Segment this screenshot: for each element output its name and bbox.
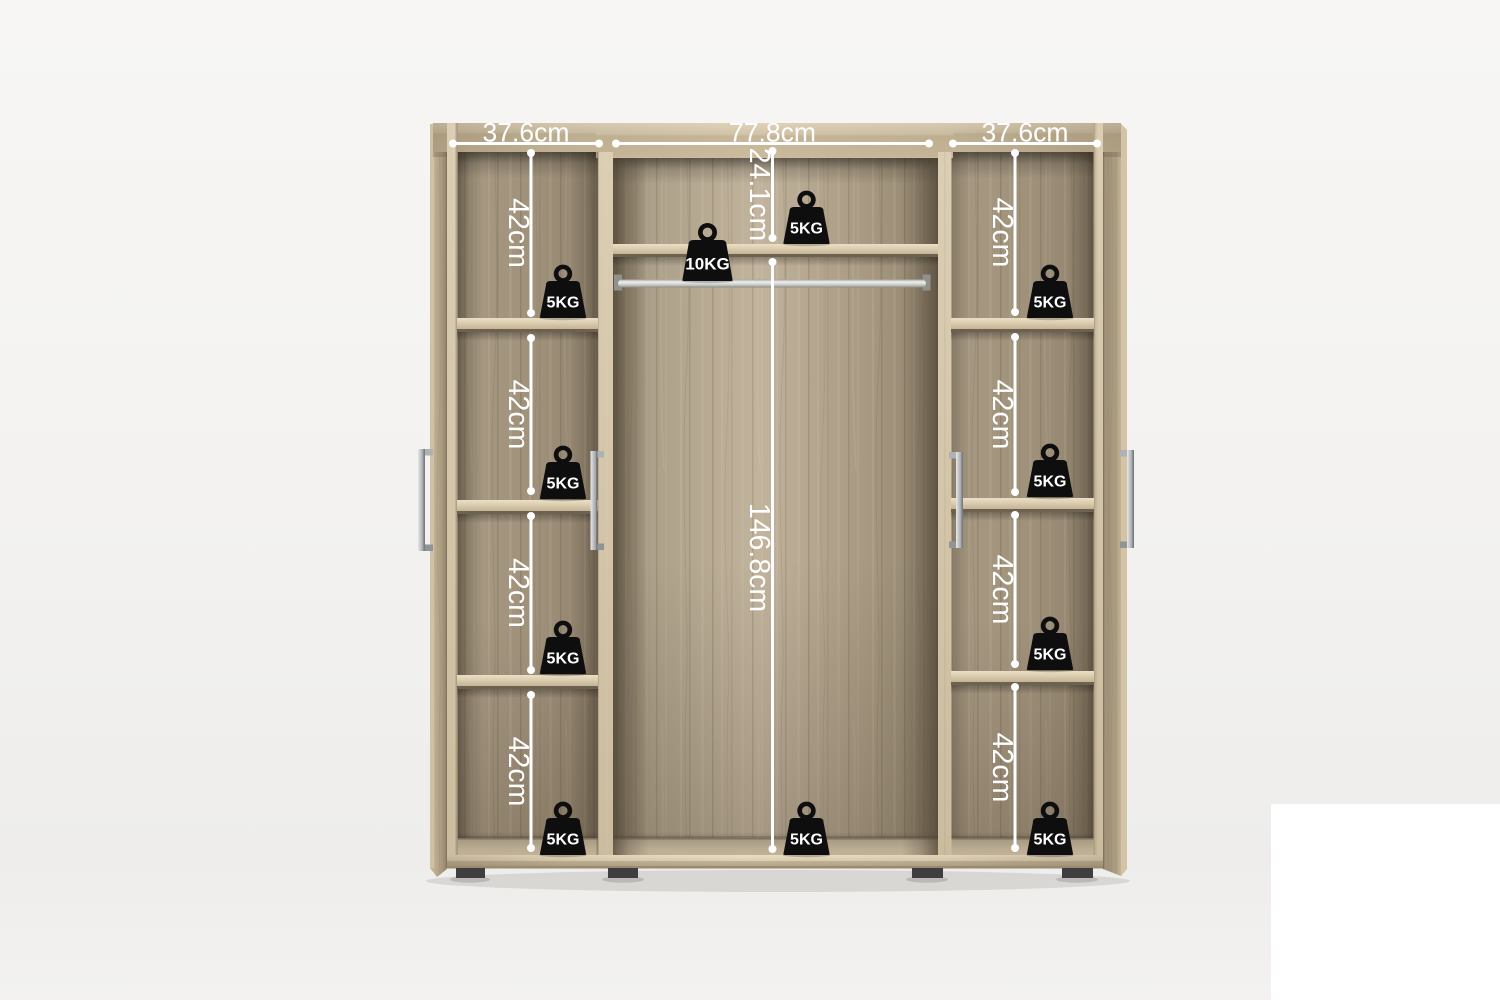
svg-text:42cm: 42cm xyxy=(986,198,1018,268)
svg-text:24.1cm: 24.1cm xyxy=(743,148,775,241)
svg-text:77.8cm: 77.8cm xyxy=(729,118,816,148)
svg-text:37.6cm: 37.6cm xyxy=(483,118,570,148)
svg-text:42cm: 42cm xyxy=(986,555,1018,625)
svg-text:42cm: 42cm xyxy=(986,733,1018,803)
svg-text:42cm: 42cm xyxy=(502,198,534,268)
svg-text:146.8cm: 146.8cm xyxy=(743,503,775,612)
svg-text:42cm: 42cm xyxy=(502,737,534,807)
svg-text:42cm: 42cm xyxy=(502,380,534,450)
svg-text:37.6cm: 37.6cm xyxy=(982,118,1069,148)
svg-text:42cm: 42cm xyxy=(986,380,1018,450)
svg-text:42cm: 42cm xyxy=(502,558,534,628)
